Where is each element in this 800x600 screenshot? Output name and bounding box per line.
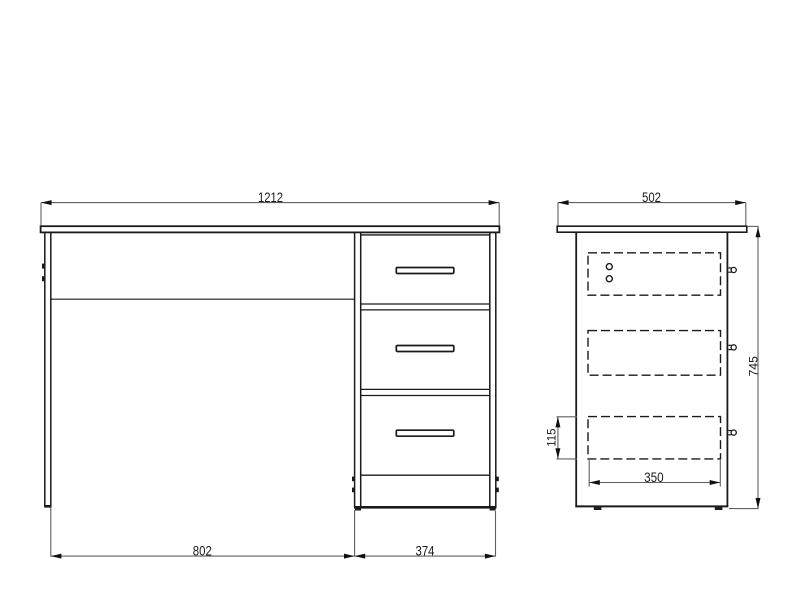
svg-text:374: 374 (416, 544, 435, 559)
svg-text:502: 502 (642, 190, 661, 205)
svg-text:1212: 1212 (258, 190, 283, 205)
svg-text:115: 115 (546, 429, 558, 447)
svg-text:350: 350 (644, 470, 664, 485)
svg-text:802: 802 (193, 544, 212, 559)
svg-text:745: 745 (746, 356, 760, 377)
